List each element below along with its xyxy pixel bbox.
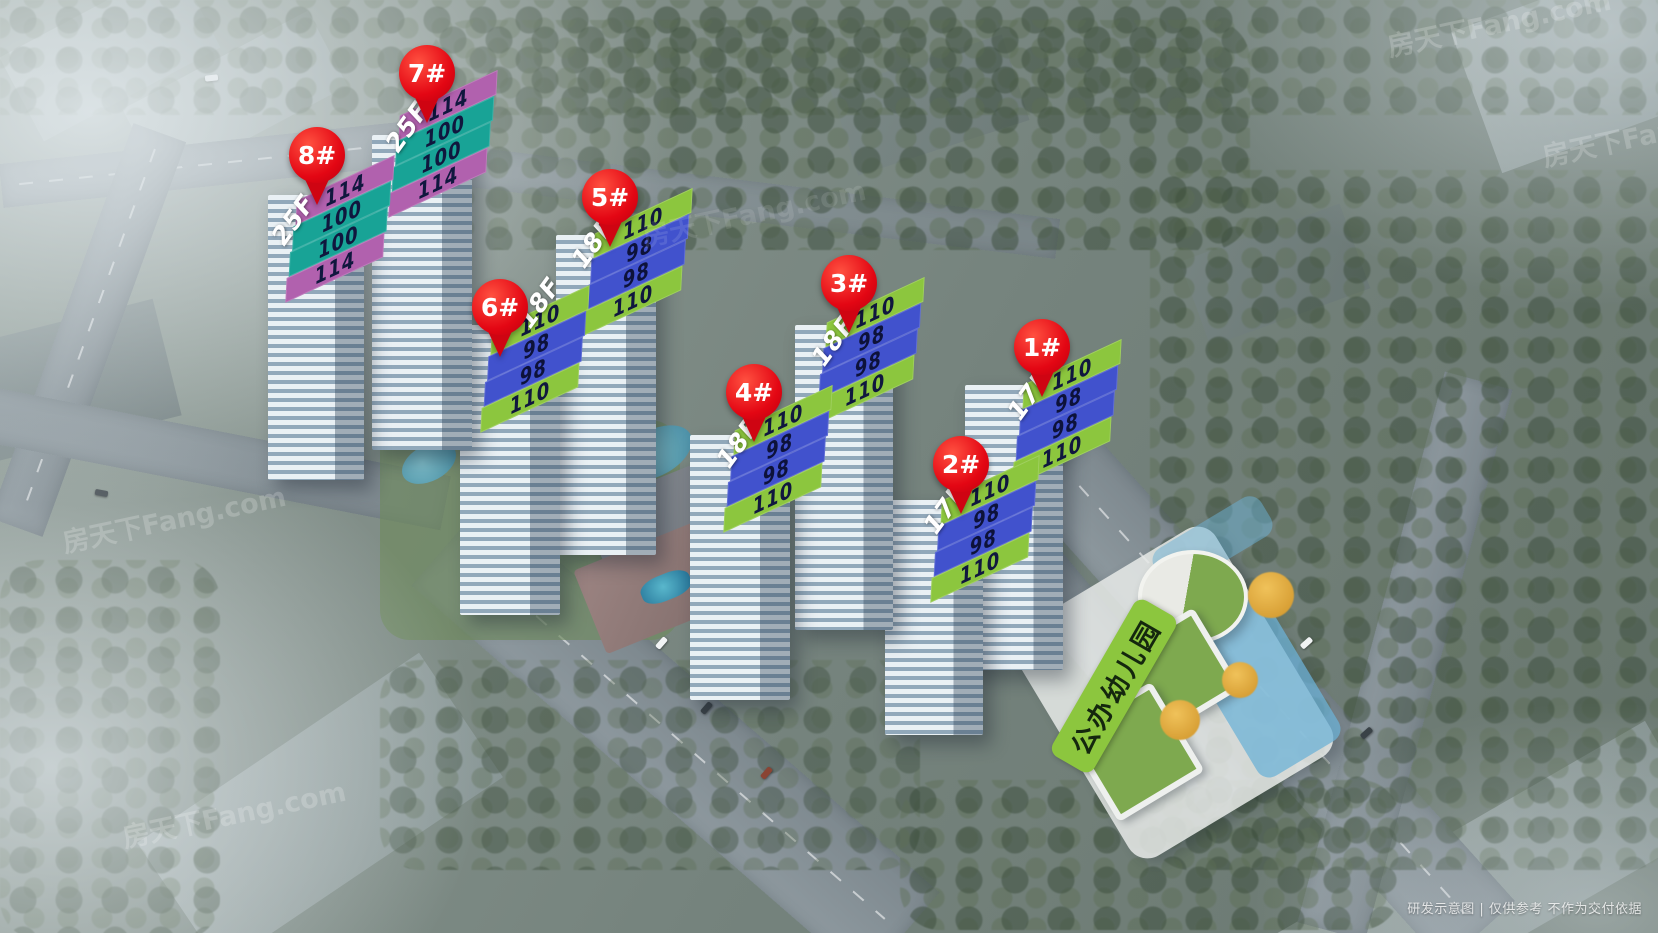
tree-canopy [380, 660, 920, 870]
pin-label: 3# [830, 269, 868, 298]
pin-label: 8# [298, 141, 336, 170]
tree-canopy [0, 560, 220, 933]
aerial-site-plan: 公办幼儿园 110 98 98 110 110 98 98 110 110 98… [0, 0, 1658, 933]
golden-tree [1160, 700, 1200, 740]
car [95, 489, 109, 497]
disclaimer-text: 研发示意图 | 仅供参考 不作为交付依据 [1407, 898, 1642, 917]
pin-label: 1# [1023, 333, 1061, 362]
pin-head: 6# [472, 279, 528, 335]
pin-label: 4# [735, 378, 773, 407]
pin-label: 6# [481, 293, 519, 322]
pin-label: 7# [408, 59, 446, 88]
pin-label: 2# [942, 450, 980, 479]
building-pin-6[interactable]: 6# [472, 279, 528, 363]
pin-head: 8# [289, 127, 345, 183]
building-pin-1[interactable]: 1# [1014, 319, 1070, 403]
tree-canopy [430, 20, 1250, 250]
pin-head: 4# [726, 364, 782, 420]
building-pin-2[interactable]: 2# [933, 436, 989, 520]
pin-head: 7# [399, 45, 455, 101]
building-pin-4[interactable]: 4# [726, 364, 782, 448]
pin-head: 1# [1014, 319, 1070, 375]
golden-tree [1222, 662, 1258, 698]
building-pin-7[interactable]: 7# [399, 45, 455, 129]
pin-head: 3# [821, 255, 877, 311]
pin-head: 5# [582, 169, 638, 225]
building-pin-8[interactable]: 8# [289, 127, 345, 211]
building-pin-3[interactable]: 3# [821, 255, 877, 339]
building-pin-5[interactable]: 5# [582, 169, 638, 253]
pin-label: 5# [591, 183, 629, 212]
golden-tree [1248, 572, 1294, 618]
pin-head: 2# [933, 436, 989, 492]
